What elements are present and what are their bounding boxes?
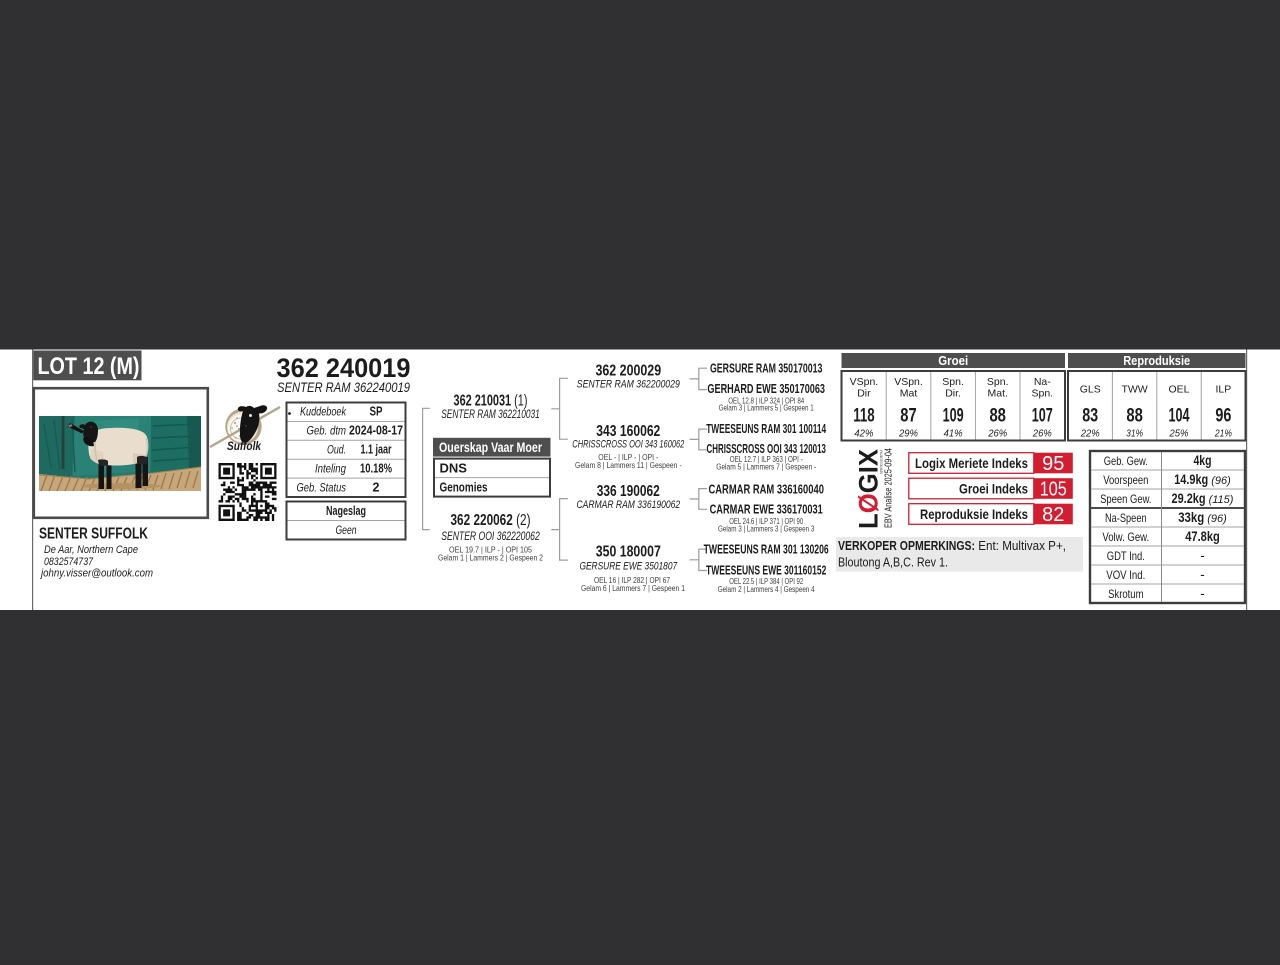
- svg-text:De Aar, Northern Cape: De Aar, Northern Cape: [44, 544, 138, 556]
- svg-text:350 180007: 350 180007: [596, 543, 661, 560]
- svg-text:Gelam 3 | Lammers 3 | Gespeen: Gelam 3 | Lammers 3 | Gespeen 3: [718, 523, 815, 533]
- svg-text:Dir: Dir: [857, 388, 871, 400]
- svg-text:Gelam 5 | Lammers 7 | Gespeen: Gelam 5 | Lammers 7 | Gespeen -: [716, 461, 816, 471]
- svg-text:Inteling: Inteling: [315, 461, 346, 475]
- svg-text:SENTER RAM 362240019: SENTER RAM 362240019: [277, 380, 410, 395]
- svg-text:GERHARD EWE 350170063: GERHARD EWE 350170063: [707, 381, 825, 396]
- svg-text:-: -: [1200, 548, 1205, 563]
- svg-text:22%: 22%: [1080, 428, 1100, 440]
- svg-text:GDT Ind.: GDT Ind.: [1107, 549, 1145, 563]
- svg-text:26%: 26%: [987, 428, 1007, 440]
- svg-text:SENTER RAM 362210031: SENTER RAM 362210031: [441, 409, 540, 421]
- svg-text:109: 109: [943, 405, 964, 427]
- svg-text:VERKOPER OPMERKINGS: Ent: Mul: VERKOPER OPMERKINGS: Ent: Multivax P+,: [838, 538, 1066, 553]
- svg-text:41%: 41%: [944, 428, 963, 440]
- svg-text:Speen Gew.: Speen Gew.: [1100, 492, 1151, 506]
- svg-text:GLS: GLS: [1080, 384, 1101, 396]
- svg-text:Na-: Na-: [1034, 376, 1051, 388]
- svg-text:104: 104: [1169, 405, 1190, 427]
- svg-text:Gelam 6 | Lammers 7 | Gespeen: Gelam 6 | Lammers 7 | Gespeen 1: [581, 583, 685, 593]
- svg-text:VSpn.: VSpn.: [850, 376, 879, 388]
- svg-text:Logix Meriete Indeks: Logix Meriete Indeks: [915, 455, 1028, 471]
- svg-text:14.9kg (96): 14.9kg (96): [1174, 472, 1231, 487]
- svg-text:EBV Analise 2025-09-04: EBV Analise 2025-09-04: [883, 448, 895, 528]
- svg-text:42%: 42%: [854, 428, 873, 440]
- svg-text:Skrotum: Skrotum: [1108, 587, 1143, 601]
- svg-text:10.18%: 10.18%: [360, 461, 392, 475]
- svg-text:29.2kg (115): 29.2kg (115): [1172, 491, 1234, 506]
- svg-text:TWEESEUNS RAM 301 100114: TWEESEUNS RAM 301 100114: [706, 421, 826, 436]
- svg-text:1.1 jaar: 1.1 jaar: [361, 443, 392, 457]
- svg-text:Na-Speen: Na-Speen: [1105, 511, 1147, 525]
- svg-text:Genomies: Genomies: [440, 479, 488, 494]
- svg-text:GERSURE EWE 3501807: GERSURE EWE 3501807: [579, 561, 677, 573]
- svg-text:SENTER SUFFOLK: SENTER SUFFOLK: [39, 526, 148, 543]
- svg-text:21%: 21%: [1214, 428, 1232, 440]
- svg-text:TWW: TWW: [1121, 384, 1147, 396]
- svg-text:118: 118: [853, 405, 874, 427]
- svg-text:95: 95: [1042, 453, 1064, 475]
- svg-text:Gelam 1 | Lammers 2 | Gespeen: Gelam 1 | Lammers 2 | Gespeen 2: [438, 553, 543, 563]
- svg-text:87: 87: [900, 405, 916, 427]
- svg-text:CARMAR RAM 336190062: CARMAR RAM 336190062: [576, 499, 680, 511]
- svg-text:Kuddeboek: Kuddeboek: [300, 405, 347, 419]
- svg-text:Bloutong A,B,C. Rev 1.: Bloutong A,B,C. Rev 1.: [838, 555, 948, 570]
- svg-text:Spn.: Spn.: [1031, 388, 1053, 400]
- svg-text:Mat.: Mat.: [987, 388, 1007, 400]
- svg-text:Voorspeen: Voorspeen: [1103, 473, 1148, 487]
- svg-text:Gelam 8 | Lammers 11 | Gespeen: Gelam 8 | Lammers 11 | Gespeen -: [575, 460, 682, 470]
- svg-text:LOT 12 (M): LOT 12 (M): [38, 353, 140, 380]
- svg-text:362 220062 (2): 362 220062 (2): [451, 512, 531, 529]
- svg-text:johny.visser@outlook.com: johny.visser@outlook.com: [39, 568, 153, 580]
- svg-text:47.8kg: 47.8kg: [1185, 529, 1220, 544]
- svg-text:107: 107: [1032, 405, 1053, 427]
- svg-text:-: -: [1200, 586, 1205, 601]
- svg-text:Suffolk: Suffolk: [227, 439, 262, 453]
- svg-text:336 190062: 336 190062: [597, 483, 660, 500]
- svg-text:88: 88: [989, 405, 1006, 427]
- svg-text:TWEESEUNS EWE 301160152: TWEESEUNS EWE 301160152: [706, 562, 826, 577]
- svg-text:0832574737: 0832574737: [44, 556, 94, 568]
- svg-text:Reproduksie: Reproduksie: [1123, 353, 1190, 368]
- svg-text:CARMAR EWE 336170031: CARMAR EWE 336170031: [710, 502, 823, 517]
- svg-text:Groei Indeks: Groei Indeks: [959, 481, 1028, 497]
- svg-text:362 200029: 362 200029: [596, 362, 662, 379]
- svg-text:2: 2: [373, 480, 380, 494]
- svg-text:Geb. Status: Geb. Status: [297, 480, 347, 494]
- svg-text:362 210031 (1): 362 210031 (1): [454, 392, 528, 409]
- svg-text:Ouerskap Vaar Moer: Ouerskap Vaar Moer: [439, 440, 543, 455]
- svg-text:105: 105: [1040, 479, 1067, 501]
- svg-text:Geb. dtm: Geb. dtm: [307, 424, 347, 438]
- svg-text:ILP: ILP: [1216, 384, 1232, 396]
- svg-text:82: 82: [1042, 504, 1064, 526]
- svg-text:Spn.: Spn.: [987, 376, 1009, 388]
- svg-text:Mat: Mat: [900, 388, 918, 400]
- svg-text:96: 96: [1215, 405, 1231, 427]
- svg-text:CHRISSCROSS OOI 343 160062: CHRISSCROSS OOI 343 160062: [572, 438, 684, 450]
- svg-text:Gelam 3 | Lammers 5 | Gespeen: Gelam 3 | Lammers 5 | Gespeen 1: [719, 402, 814, 412]
- svg-text:88: 88: [1126, 405, 1143, 427]
- svg-text:Groei: Groei: [938, 353, 968, 368]
- svg-text:362 240019: 362 240019: [277, 353, 411, 383]
- svg-text:DNS: DNS: [440, 460, 468, 475]
- svg-text:Gelam 2 | Lammers 4 | Gespeen: Gelam 2 | Lammers 4 | Gespeen 4: [718, 584, 815, 594]
- svg-text:Dir.: Dir.: [945, 388, 961, 400]
- svg-text:VOV Ind.: VOV Ind.: [1106, 568, 1145, 582]
- svg-text:29%: 29%: [898, 428, 918, 440]
- svg-text:83: 83: [1082, 405, 1098, 427]
- svg-text:SENTER RAM 362200029: SENTER RAM 362200029: [577, 379, 680, 391]
- svg-text:Geen: Geen: [336, 523, 357, 537]
- svg-text:Nageslag: Nageslag: [326, 504, 366, 518]
- svg-text:Volw. Gew.: Volw. Gew.: [1102, 530, 1149, 544]
- svg-text:VSpn.: VSpn.: [894, 376, 923, 388]
- svg-text:343 160062: 343 160062: [596, 423, 660, 440]
- svg-text:4kg: 4kg: [1194, 453, 1212, 468]
- svg-text:GERSURE RAM 350170013: GERSURE RAM 350170013: [710, 361, 823, 376]
- svg-text:Reproduksie Indeks: Reproduksie Indeks: [920, 506, 1028, 522]
- svg-text:-: -: [1200, 567, 1205, 582]
- svg-text:26%: 26%: [1032, 428, 1052, 440]
- svg-text:25%: 25%: [1169, 428, 1189, 440]
- svg-text:TWEESEUNS RAM 301 130206: TWEESEUNS RAM 301 130206: [704, 542, 829, 557]
- svg-text:SENTER OOI 362220062: SENTER OOI 362220062: [441, 531, 540, 543]
- svg-text:CARMAR RAM 336160040: CARMAR RAM 336160040: [708, 481, 824, 496]
- svg-text:31%: 31%: [1126, 428, 1143, 440]
- svg-text:2024-08-17: 2024-08-17: [349, 424, 403, 438]
- svg-text:Geb. Gew.: Geb. Gew.: [1104, 454, 1148, 468]
- svg-text:Oud.: Oud.: [327, 443, 346, 457]
- svg-text:SP: SP: [370, 405, 383, 419]
- svg-text:Spn.: Spn.: [942, 376, 964, 388]
- svg-text:OEL: OEL: [1168, 384, 1189, 396]
- svg-text:33kg (96): 33kg (96): [1178, 510, 1227, 525]
